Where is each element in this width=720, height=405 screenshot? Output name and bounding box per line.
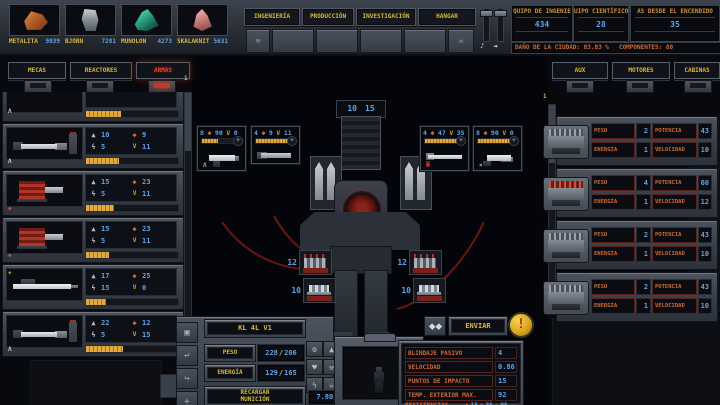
missile-crate-art (299, 250, 332, 275)
stat-label: BLINDAJE PASIVO (405, 347, 493, 359)
resource-value: 5631 (214, 39, 228, 45)
peso-value-box: 228/206 (257, 344, 305, 362)
info-value: 35 (631, 20, 719, 29)
plus-icon[interactable]: + (509, 136, 519, 146)
weapon-art (255, 148, 296, 160)
item-bar (85, 204, 179, 212)
components-status: COMPONENTES: 80 (619, 45, 673, 51)
crate-count: 12 (283, 258, 297, 267)
potencia-label: POTENCIA (652, 279, 697, 295)
tab-ingenieria[interactable]: INGENIERÍA (244, 8, 300, 26)
peso-value: 2 (636, 279, 651, 295)
slot-stat: 8 (200, 129, 204, 137)
slot-damage: 9 (269, 129, 273, 137)
move-button[interactable]: + (176, 391, 198, 405)
plus-icon[interactable]: + (456, 136, 466, 146)
stat-label: VELOCIDAD (405, 361, 493, 373)
tab-connector (684, 80, 712, 93)
gear-icon: ⚙ (312, 345, 317, 354)
tab-label: INVESTIGACIÓN (363, 14, 410, 20)
left-scrollbar-thumb[interactable] (185, 93, 191, 151)
energia-value: 1 (636, 142, 651, 158)
ammo-icon: V (131, 237, 138, 244)
ammo-icon: V (131, 143, 138, 150)
item-damage: 23 (142, 178, 150, 186)
reload-label-line2: MUNICIÓN (241, 397, 270, 403)
slot-stat: 4 (423, 129, 427, 137)
engine-image (543, 177, 589, 211)
info-box-days: AS DESDE EL ENCENDIDO 35 (630, 5, 720, 42)
weapon-slot-3[interactable]: 4 ◆ 47 V 35 + ▼ (420, 126, 469, 171)
damage-icon: ◆ (131, 178, 138, 186)
plus-icon[interactable]: + (287, 136, 297, 146)
tab-mecas[interactable]: MECAS (8, 62, 66, 79)
music-slider-knob[interactable] (480, 10, 493, 17)
stat-value: 4 (495, 347, 517, 359)
stat-value: 0.86 (495, 361, 517, 373)
side-buttons: ▣ ↩ ↪ + (176, 322, 198, 405)
hangar-screen: 10 15 8 ◆ 90 V 0 + (0, 0, 720, 405)
quick-slot-button[interactable] (360, 29, 402, 53)
caret-icon: Λ (8, 158, 12, 165)
item-weight: 15 (101, 178, 109, 186)
item-bar (85, 298, 179, 306)
wrench-button[interactable]: ⚒ (246, 29, 270, 53)
layout-grid-button[interactable] (424, 316, 446, 336)
slot-damage: 90 (215, 129, 223, 137)
item-damage: 12 (142, 319, 150, 327)
tab-label: REACTORES (85, 68, 118, 74)
weapon-list-item-partial[interactable]: Λ (2, 92, 184, 122)
tab-connector (626, 80, 654, 93)
item-energy: 5 (101, 190, 105, 198)
potencia-value: 43 (698, 227, 712, 243)
potencia-label: POTENCIA (652, 227, 697, 243)
alien-icon: ☠ (459, 37, 464, 45)
resource-name: METALITA (9, 39, 38, 45)
peso-label: PESO (591, 279, 635, 295)
peso-value: 2 (636, 123, 651, 139)
metalita-ore-icon (20, 9, 48, 31)
weight-icon: ▲ (90, 272, 97, 280)
scroll-index: 1 (184, 76, 188, 82)
energia-label: ENERGÍA (217, 370, 242, 376)
ammo-icon: V (448, 130, 455, 137)
engine-image (543, 125, 589, 159)
plus-icon: + (8, 270, 12, 277)
velocidad-label: VELOCIDAD (652, 246, 697, 262)
weapon-art (477, 151, 518, 167)
resource-metalita: METALITA9039 (8, 3, 61, 49)
damage-icon: ◆ (260, 129, 267, 137)
resource-value: 7281 (102, 39, 116, 45)
item-energy: 5 (101, 143, 105, 151)
tab-label: MECAS (28, 68, 46, 74)
engine-list-item[interactable]: PESO2 POTENCIA43 ENERGÍA1 VELOCIDAD10 (556, 116, 718, 166)
shield-button[interactable]: ♥ (306, 359, 323, 375)
stat-label: TEMP. EXTERIOR MAX. (405, 389, 493, 401)
quick-slot-button[interactable] (272, 29, 314, 53)
sound-slider-knob[interactable] (494, 10, 507, 17)
damage-icon: ◆ (131, 225, 138, 233)
peso-label-plate: PESO (204, 344, 256, 362)
resource-munolon: MUNOLON4273 (120, 3, 173, 49)
resource-skalaknit: SKALAKNIT5631 (176, 3, 229, 49)
send-label: ENVIAR (465, 323, 490, 330)
recorder-button[interactable]: ▣ (176, 322, 198, 343)
missile-crate-art (409, 250, 442, 275)
weapon-list: Λ ▲10 ◆9 ϟ5 V11 Λ ▲15 ◆23 ϟ5 V11 ◆ (0, 92, 192, 368)
damage-icon: ◆ (429, 129, 436, 137)
weapon-list-item[interactable]: ▲15 ◆23 ϟ5 V11 ◆ (2, 170, 184, 216)
ammo-icon: V (131, 284, 138, 291)
slot-damage: 90 (491, 129, 499, 137)
layout-grid-icon (428, 319, 441, 332)
potencia-value: 43 (698, 123, 712, 139)
ammo-icon: V (225, 130, 232, 137)
item-weight: 10 (101, 131, 109, 139)
music-note-icon: ♪ (480, 43, 484, 50)
peso-max: 206 (284, 350, 297, 357)
engine-list-item[interactable]: PESO2 POTENCIA43 ENERGÍA1 VELOCIDAD10 (556, 220, 718, 270)
engine-list-item[interactable]: PESO2 POTENCIA43 ENERGÍA1 VELOCIDAD10 (556, 272, 718, 322)
top-ammo-left: 10 (347, 105, 357, 113)
velocidad-label: VELOCIDAD (652, 194, 697, 210)
item-energy: 5 (101, 237, 105, 245)
weapon-art (11, 132, 78, 155)
ammo-crate[interactable]: 12 (283, 250, 333, 275)
mech-stats-panel: BLINDAJE PASIVO4 VELOCIDAD0.86 PUNTOS DE… (398, 340, 524, 405)
tab-reactores[interactable]: REACTORES (70, 62, 132, 79)
speaker-icon: ◄ (493, 43, 497, 50)
down-arrow-icon: ▼ (426, 162, 430, 169)
energia-label: ENERGÍA (591, 142, 635, 158)
weapon-art (11, 226, 78, 249)
energia-label: ENERGÍA (591, 194, 635, 210)
weapon-art (201, 151, 242, 167)
mech-leg-left[interactable] (334, 270, 358, 338)
scroll-index: 1 (543, 94, 547, 100)
recorder-icon: ▣ (184, 328, 189, 338)
energia-value: 1 (636, 246, 651, 262)
caret-icon: Λ (8, 108, 12, 115)
energia-value-box: 129/165 (257, 364, 305, 382)
energia-max: 165 (284, 370, 297, 377)
energia-label: ENERGÍA (591, 298, 635, 314)
tab-cabinas[interactable]: CABINAS (674, 62, 720, 79)
engine-list-item[interactable]: PESO4 POTENCIA60 ENERGÍA1 VELOCIDAD12 (556, 168, 718, 218)
munolon-crystal-icon (132, 9, 160, 31)
weapon-art (424, 151, 465, 167)
item-ammo: 0 (142, 284, 146, 292)
item-ammo: 11 (142, 237, 150, 245)
ammo-bar: + (255, 138, 296, 144)
mech-shoulders[interactable] (300, 212, 420, 250)
resource-name: MUNOLON (121, 39, 146, 45)
undo-button[interactable]: ↩ (176, 345, 198, 366)
caret-icon: Λ (8, 346, 12, 353)
tab-label: ARMAS (154, 68, 172, 74)
plus-icon[interactable]: + (233, 136, 243, 146)
engine-image (543, 281, 589, 315)
tab-label: INGENIERÍA (254, 14, 290, 20)
stat-value: 92 (495, 389, 517, 401)
energy-icon: ϟ (90, 190, 97, 198)
item-weight: 15 (101, 225, 109, 233)
item-damage: 25 (142, 272, 150, 280)
energy-icon: ϟ (90, 143, 97, 151)
shell-crate-art (303, 278, 336, 303)
damage-icon: ◆ (482, 129, 489, 137)
item-ammo: 11 (142, 190, 150, 198)
peso-value: 4 (636, 175, 651, 191)
ammo-icon: V (131, 331, 138, 338)
tab-label: CABINAS (684, 68, 709, 74)
weight-icon: ▲ (90, 319, 97, 327)
item-energy: 5 (101, 331, 105, 339)
status-bar: DAÑO DE LA CIUDAD: 83.83 % COMPONENTES: … (511, 42, 720, 54)
energy-icon: ϟ (90, 331, 97, 339)
resource-value: 4273 (158, 39, 172, 45)
left-scrollbar[interactable] (184, 92, 192, 354)
send-button[interactable]: ENVIAR (448, 316, 508, 336)
potencia-value: 60 (698, 175, 712, 191)
tab-aux[interactable]: AUX (552, 62, 608, 79)
info-box-science: UIPO CIENTÍFICO 28 (573, 5, 629, 42)
ammo-crate[interactable]: 12 (393, 250, 443, 275)
mini-mech-silhouette (374, 367, 384, 393)
item-damage: 9 (142, 131, 146, 139)
peso-label: PESO (591, 175, 635, 191)
item-bar (85, 251, 179, 259)
velocidad-value: 12 (698, 194, 712, 210)
shield-icon: ♥ (312, 363, 317, 372)
energia-value: 1 (636, 298, 651, 314)
cross-icon: × (479, 162, 483, 169)
redo-button[interactable]: ↪ (176, 368, 198, 389)
energia-value: 1 (636, 194, 651, 210)
bjorn-ore-icon (76, 9, 104, 31)
stat-value: 15 (495, 375, 517, 387)
heat-icon: ◆ (8, 252, 12, 259)
item-ammo: 15 (142, 331, 150, 339)
separator: / (279, 350, 283, 357)
crate-count: 10 (287, 286, 301, 295)
weight-icon: ▲ (90, 178, 97, 186)
mech-leg-right[interactable] (364, 270, 388, 338)
weight-icon: ▲ (90, 225, 97, 233)
tab-label: PRODUCCIÓN (310, 14, 346, 20)
ammo-bar: + (201, 138, 242, 144)
info-box-engineering: QUIPO DE INGENIE 434 (511, 5, 573, 42)
energia-current: 129 (265, 370, 278, 377)
peso-current: 228 (265, 350, 278, 357)
tab-produccion[interactable]: PRODUCCIÓN (302, 8, 354, 26)
peso-label: PESO (591, 123, 635, 139)
mech-name: KL 4L V1 (238, 325, 272, 332)
resource-bjorn: BJORN7281 (64, 3, 117, 49)
info-label: AS DESDE EL ENCENDIDO (631, 6, 719, 15)
separator: / (279, 370, 283, 377)
quick-slot-button[interactable] (316, 29, 358, 53)
energia-label: ENERGÍA (591, 246, 635, 262)
resource-name: SKALAKNIT (177, 39, 210, 45)
viewport-handle (364, 333, 396, 342)
caret-icon: Λ (203, 162, 207, 169)
weapon-slot-1[interactable]: 8 ◆ 90 V 0 + Λ (197, 126, 246, 171)
slot-stat: 8 (476, 129, 480, 137)
tab-label: AUX (575, 68, 586, 74)
undo-icon: ↩ (184, 351, 189, 361)
tab-armas[interactable]: ARMAS (136, 62, 190, 79)
peso-label: PESO (591, 227, 635, 243)
ammo-icon: V (275, 130, 282, 137)
antenna-rack[interactable] (341, 116, 381, 170)
item-energy: 15 (101, 284, 109, 292)
potencia-label: POTENCIA (652, 175, 697, 191)
weapon-list-item[interactable]: ▲17 ◆25 ϟ15 V0 + (2, 264, 184, 310)
skalaknit-crystal-icon (188, 9, 216, 31)
weapon-art (11, 320, 78, 343)
engine-image (543, 229, 589, 263)
potencia-label: POTENCIA (652, 123, 697, 139)
item-damage: 23 (142, 225, 150, 233)
velocidad-label: VELOCIDAD (652, 298, 697, 314)
tab-connector (566, 80, 594, 93)
damage-icon: ◆ (206, 129, 213, 137)
heat-icon: ◆ (8, 205, 12, 212)
damage-icon: ◆ (131, 131, 138, 139)
energy-bolt-icon: ϟ (312, 381, 317, 390)
tab-label: MOTORES (628, 68, 653, 74)
weapon-art (11, 273, 78, 296)
velocidad-value: 10 (698, 142, 712, 158)
info-value: 434 (512, 20, 572, 29)
redo-icon: ↪ (184, 374, 189, 384)
weapon-slot-2[interactable]: 4 ◆ 9 V 11 + (251, 126, 300, 164)
item-weight: 17 (101, 272, 109, 280)
ammo-crate[interactable]: 10 (397, 278, 447, 303)
shell-crate-art (413, 278, 446, 303)
background-machinery (552, 318, 720, 405)
ammo-bar: + (424, 138, 465, 144)
energia-label-plate: ENERGÍA (204, 364, 256, 382)
info-value: 28 (574, 20, 628, 29)
item-bar (85, 157, 179, 165)
velocidad-value: 10 (698, 298, 712, 314)
info-label: QUIPO DE INGENIE (512, 6, 572, 15)
warning-badge[interactable]: ! (508, 312, 534, 338)
ammo-bar: + (477, 138, 518, 144)
peso-label: PESO (223, 350, 237, 356)
crate-count: 10 (397, 286, 411, 295)
tab-hangar[interactable]: HANGAR (418, 8, 476, 26)
tab-investigacion[interactable]: INVESTIGACIÓN (356, 8, 416, 26)
weapon-list-item[interactable]: ▲22 ◆12 ϟ5 V15 Λ (2, 311, 184, 357)
tab-label: HANGAR (436, 14, 458, 20)
item-bar (85, 345, 179, 353)
energy-icon: ϟ (90, 237, 97, 245)
slot-stat: 4 (254, 129, 258, 137)
item-ammo: 11 (142, 143, 150, 151)
energy-icon: ϟ (90, 284, 97, 292)
ammo-icon: V (131, 190, 138, 197)
weight-icon: ▲ (90, 131, 97, 139)
mech-name-plate: KL 4L V1 (204, 319, 306, 338)
top-bar: METALITA9039 BJORN7281 MUNOLON4273 SKALA… (0, 0, 720, 56)
weapon-list-item[interactable]: ▲10 ◆9 ϟ5 V11 Λ (2, 123, 184, 169)
city-damage-status: DAÑO DE LA CIUDAD: 83.83 % (515, 45, 609, 51)
weapon-slot-4[interactable]: 8 ◆ 90 V 0 + × (473, 126, 522, 171)
warning-icon: ! (517, 317, 525, 332)
item-bar (85, 110, 179, 118)
resource-value: 9039 (46, 39, 60, 45)
damage-icon: ◆ (131, 319, 138, 327)
peso-value: 2 (636, 227, 651, 243)
ammo-crate[interactable]: 10 (287, 278, 337, 303)
velocidad-label: VELOCIDAD (652, 142, 697, 158)
reload-ammo-button[interactable]: RECARGAR MUNICIÓN (204, 386, 306, 405)
potencia-value: 43 (698, 279, 712, 295)
quick-slot-button[interactable] (404, 29, 446, 53)
damage-icon: ◆ (131, 272, 138, 280)
weapon-list-item[interactable]: ▲15 ◆23 ϟ5 V11 ◆ (2, 217, 184, 263)
info-label: UIPO CIENTÍFICO (574, 6, 628, 15)
stat-label: PUNTOS DE IMPACTO (405, 375, 493, 387)
weapon-art (11, 179, 78, 202)
resource-name: BJORN (65, 39, 83, 45)
ammo-icon: V (501, 130, 508, 137)
gear-button[interactable]: ⚙ (306, 341, 323, 357)
crate-count: 12 (393, 258, 407, 267)
slot-damage: 47 (438, 129, 446, 137)
wrench-icon: ⚒ (256, 37, 261, 45)
move-icon: + (184, 397, 189, 405)
item-weight: 22 (101, 319, 109, 327)
top-ammo-right: 15 (365, 105, 375, 113)
enemy-button[interactable]: ☠ (448, 29, 474, 53)
velocidad-value: 10 (698, 246, 712, 262)
tab-motores[interactable]: MOTORES (612, 62, 670, 79)
